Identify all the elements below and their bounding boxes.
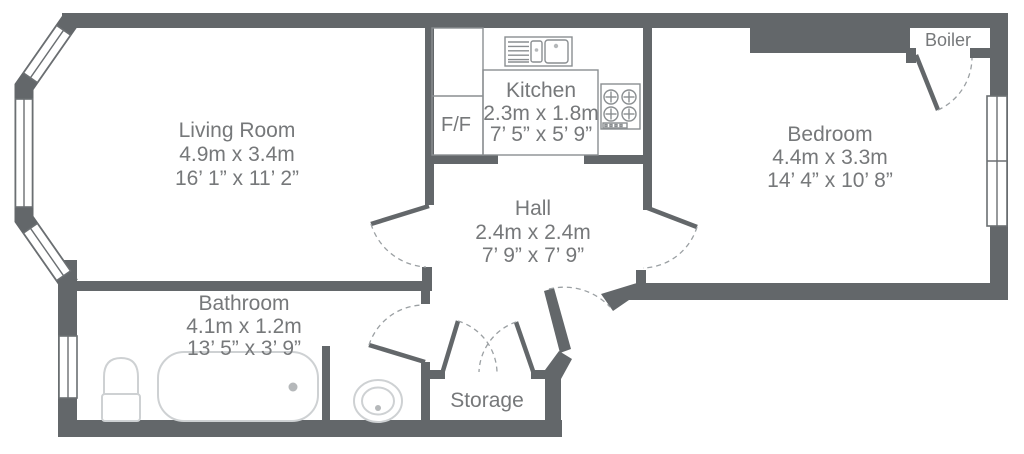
bedroom-name: Bedroom bbox=[787, 123, 872, 146]
bedroom-door-stub bbox=[636, 270, 646, 284]
bathroom-fixtures bbox=[102, 352, 402, 422]
boiler-right-stub bbox=[970, 48, 990, 58]
fridge-freezer-label: F/F bbox=[441, 114, 471, 136]
living-room-name: Living Room bbox=[179, 119, 296, 142]
boiler-door-arc bbox=[938, 58, 972, 110]
bathroom-name: Bathroom bbox=[198, 292, 289, 315]
bathroom-window-icon bbox=[59, 336, 77, 398]
living-room-metric: 4.9m x 3.4m bbox=[179, 143, 295, 166]
living-room-door-arc bbox=[371, 224, 426, 267]
boiler-door-leaf bbox=[916, 55, 938, 110]
room-living-room: Living Room 4.9m x 3.4m 16’ 1” x 11’ 2” bbox=[175, 119, 299, 190]
room-hall: Hall 2.4m x 2.4m 7’ 9” x 7’ 9” bbox=[475, 197, 591, 267]
living-room-door-leaf bbox=[371, 206, 429, 224]
kitchen-bedroom-divider-wall bbox=[643, 28, 652, 210]
entry-door-leaf bbox=[544, 288, 571, 353]
bathroom-door-leaf bbox=[369, 345, 425, 362]
floor-plan-svg: Living Room 4.9m x 3.4m 16’ 1” x 11’ 2” … bbox=[0, 0, 1024, 454]
bay-window-icon bbox=[16, 25, 71, 280]
kitchen-metric: 2.3m x 1.8m bbox=[483, 102, 599, 125]
bathroom-top-wall bbox=[70, 281, 425, 291]
bathroom-basin-partition bbox=[322, 346, 330, 424]
kitchen-name: Kitchen bbox=[506, 79, 576, 102]
bathroom-imperial: 13’ 5” x 3’ 9” bbox=[187, 337, 301, 360]
bedroom-bottom-wall bbox=[601, 283, 1008, 311]
bedroom-door-arc bbox=[643, 227, 697, 268]
hall-name: Hall bbox=[515, 197, 551, 220]
bath-icon bbox=[158, 352, 318, 421]
bedroom-window-icon bbox=[987, 96, 1007, 226]
storage-right-wall bbox=[545, 351, 572, 437]
room-labels: Living Room 4.9m x 3.4m 16’ 1” x 11’ 2” … bbox=[175, 30, 971, 412]
room-bathroom: Bathroom 4.1m x 1.2m 13’ 5” x 3’ 9” bbox=[186, 292, 302, 360]
living-room-imperial: 16’ 1” x 11’ 2” bbox=[175, 167, 299, 190]
bathroom-door-top-jamb bbox=[421, 291, 430, 304]
basin-icon bbox=[354, 380, 402, 422]
doors bbox=[369, 55, 972, 374]
bathroom-hall-partition bbox=[421, 362, 430, 424]
storage-right-door-leaf bbox=[516, 322, 534, 374]
kitchen-bottom-wall-right bbox=[584, 155, 644, 164]
bathroom-metric: 4.1m x 1.2m bbox=[186, 315, 302, 338]
bedroom-door-leaf bbox=[645, 207, 697, 227]
room-bedroom: Bedroom 4.4m x 3.3m 14’ 4” x 10’ 8” bbox=[767, 123, 893, 192]
toilet-icon bbox=[102, 358, 140, 421]
room-kitchen: Kitchen 2.3m x 1.8m 7’ 5” x 5’ 9” bbox=[483, 79, 599, 146]
hob-icon bbox=[601, 84, 640, 129]
hall-imperial: 7’ 9” x 7’ 9” bbox=[482, 244, 584, 267]
bedroom-metric: 4.4m x 3.3m bbox=[772, 146, 888, 169]
storage-left-door-leaf bbox=[442, 321, 458, 374]
storage-right-door-arc bbox=[479, 322, 516, 372]
boiler-label: Boiler bbox=[925, 30, 971, 50]
bottom-wall bbox=[58, 420, 562, 437]
sink-unit-icon bbox=[505, 37, 572, 66]
boiler-door-jamb bbox=[906, 48, 916, 63]
kitchen-imperial: 7’ 5” x 5’ 9” bbox=[490, 123, 592, 146]
storage-left-door-arc bbox=[458, 321, 497, 372]
hall-metric: 2.4m x 2.4m bbox=[475, 221, 591, 244]
kitchen-bottom-wall-left bbox=[427, 155, 498, 164]
top-wall bbox=[62, 13, 1008, 28]
bathroom-door-arc bbox=[369, 305, 423, 345]
bedroom-imperial: 14’ 4” x 10’ 8” bbox=[767, 169, 893, 192]
bedroom-top-thick-wall bbox=[750, 28, 910, 53]
floor-plan: Living Room 4.9m x 3.4m 16’ 1” x 11’ 2” … bbox=[0, 0, 1024, 454]
storage-label: Storage bbox=[450, 389, 524, 412]
